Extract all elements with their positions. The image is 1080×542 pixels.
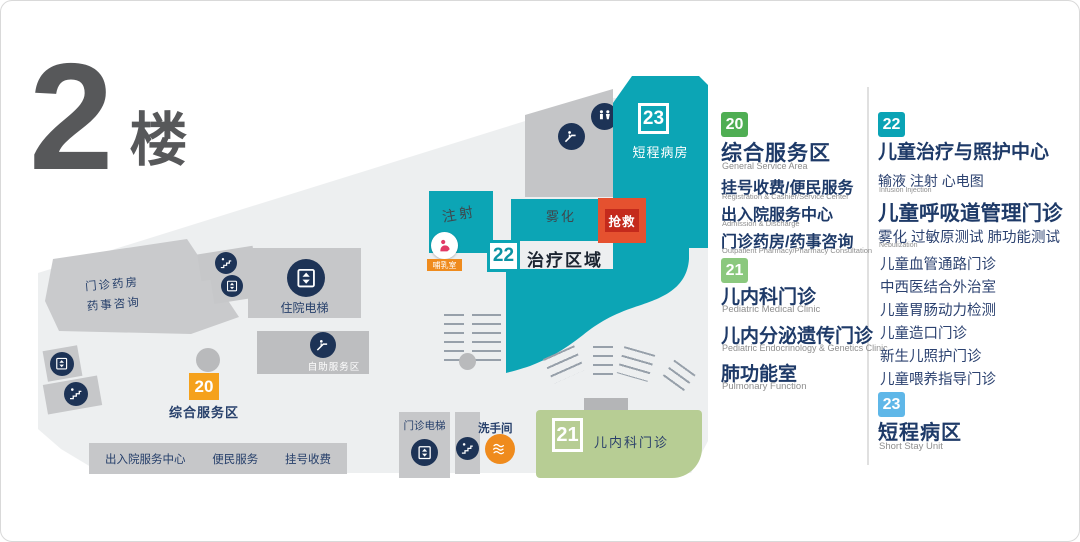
legend-item-en: Pediatric Endocrinology & Genetics Clini… bbox=[722, 343, 888, 353]
legend-list-item: 儿童造口门诊 bbox=[880, 322, 967, 343]
legend-title-20-en: General Service Area bbox=[722, 161, 808, 171]
area22-number: 22 bbox=[493, 245, 514, 267]
treatment-area-label: 治疗区域 bbox=[527, 246, 603, 271]
ward23-number-box: 23 bbox=[638, 103, 669, 134]
pediatric-clinic-block: 21 儿内科门诊 bbox=[536, 410, 702, 478]
legend-badge-21: 21 bbox=[721, 258, 748, 283]
legend-item-en: Pediatric Medical Clinic bbox=[722, 304, 820, 315]
legend-list-item: 儿童血管通路门诊 bbox=[880, 253, 996, 274]
escalator-icon bbox=[558, 123, 585, 150]
floor-title: 2 楼 bbox=[29, 45, 188, 189]
legend-badge-20: 20 bbox=[721, 112, 748, 137]
stairs-icon bbox=[215, 252, 237, 274]
escalator-icon bbox=[310, 332, 336, 358]
service-bottom-bar: 出入院服务中心 便民服务 挂号收费 bbox=[89, 443, 347, 474]
legend-item-en: Registration & Cashier/Service Center bbox=[722, 192, 849, 201]
rescue-label: 抢救 bbox=[605, 209, 638, 232]
seating-rows bbox=[593, 346, 613, 376]
convenience-service-label: 便民服务 bbox=[212, 451, 258, 467]
rescue-room-block: 抢救 bbox=[598, 198, 646, 243]
legend-item-en: Outpatient Pharmacy/Pharmacy Consultatio… bbox=[722, 246, 872, 255]
ward23-label: 短程病房 bbox=[613, 142, 708, 161]
legend-list-item: 新生儿照护门诊 bbox=[880, 345, 982, 366]
legend-list-item: 儿童喂养指导门诊 bbox=[880, 368, 996, 389]
area22-number-box: 22 bbox=[487, 240, 520, 272]
outpatient-elevator-label: 门诊电梯 bbox=[399, 418, 450, 433]
clinic21-label: 儿内科门诊 bbox=[594, 432, 669, 451]
ward23-number: 23 bbox=[643, 108, 664, 130]
legend-item-en: Pulmonary Function bbox=[722, 381, 806, 392]
admission-discharge-label: 出入院服务中心 bbox=[105, 451, 186, 467]
legend-sub2-22-en: Nebulization bbox=[879, 242, 918, 249]
legend-sub-22-en: Infusion Injection bbox=[879, 187, 932, 194]
clinic21-number-box: 21 bbox=[552, 418, 583, 452]
service-area-badge: 20 bbox=[189, 373, 219, 400]
self-service-label: 自助服务区 bbox=[301, 359, 367, 373]
restroom-icon bbox=[485, 434, 515, 464]
legend-title-22: 儿童治疗与照护中心 bbox=[878, 137, 1049, 164]
elevator-icon bbox=[50, 352, 74, 376]
legend-list-item: 中西医结合外治室 bbox=[880, 276, 996, 297]
floor-suffix: 楼 bbox=[130, 93, 188, 177]
legend-title2-22: 儿童呼吸道管理门诊 bbox=[878, 196, 1063, 226]
inpatient-elevator-label: 住院电梯 bbox=[248, 299, 361, 316]
nursing-room-label: 哺乳室 bbox=[427, 259, 462, 271]
legend-divider bbox=[867, 87, 869, 465]
stairs-icon bbox=[64, 382, 88, 406]
pillar bbox=[459, 353, 476, 370]
stairs-icon bbox=[456, 437, 479, 460]
legend-badge-23: 23 bbox=[878, 392, 905, 417]
service-area-label: 综合服务区 bbox=[149, 402, 259, 421]
elevator-icon bbox=[221, 275, 243, 297]
legend-title-23-en: Short Stay Unit bbox=[879, 441, 943, 452]
elevator-icon bbox=[287, 259, 325, 297]
pharmacy-label-line2: 药事咨询 bbox=[86, 293, 142, 318]
legend-list-item: 儿童胃肠动力检测 bbox=[880, 299, 996, 320]
legend-badge-22: 22 bbox=[878, 112, 905, 137]
nebulization-label: 雾化 bbox=[546, 206, 576, 225]
registration-cashier-label: 挂号收费 bbox=[285, 451, 331, 467]
floor-number: 2 bbox=[29, 45, 114, 189]
pillar bbox=[196, 348, 220, 372]
floor-map-canvas: 2 楼 23 短程病房 注射 雾化 抢救 22 治疗区域 哺乳室 bbox=[0, 0, 1080, 542]
nursing-room-icon bbox=[431, 232, 458, 259]
legend-item-en: Admission & Discharge bbox=[722, 219, 800, 228]
clinic21-number: 21 bbox=[556, 424, 578, 447]
elevator-icon bbox=[411, 439, 438, 466]
